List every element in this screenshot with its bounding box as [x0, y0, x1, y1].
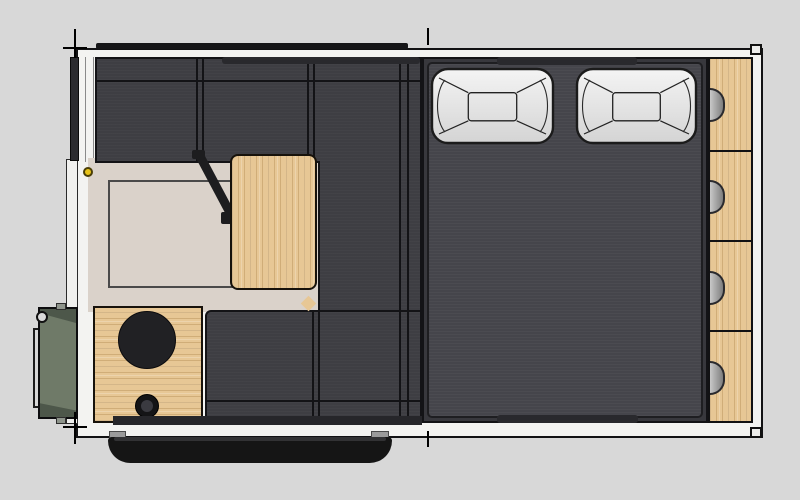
- dinette-top-bench: [95, 57, 422, 163]
- cushion-seam: [202, 59, 204, 161]
- cushion-seam: [97, 80, 420, 82]
- table-leg-mount: [192, 150, 205, 159]
- storage-cabinet-column: [708, 57, 753, 423]
- left-exterior-trim: [70, 57, 79, 161]
- drain-fitting-center: [141, 400, 153, 412]
- cushion-seam: [407, 59, 409, 161]
- cushion-seam: [399, 59, 401, 161]
- sink-basin: [118, 311, 176, 369]
- cushion-seam: [399, 312, 401, 421]
- corner-latch: [750, 427, 762, 438]
- cabinet-handle: [710, 88, 725, 122]
- cushion-seam: [307, 59, 309, 161]
- rear-bumper-step: [108, 437, 392, 463]
- bed-head-rail: [497, 57, 637, 65]
- roof-rail: [96, 43, 408, 49]
- exterior-storage-box: [38, 307, 78, 419]
- cabinet-divider: [710, 240, 751, 242]
- wall-line: [93, 57, 94, 162]
- cabinet-divider: [710, 330, 751, 332]
- bed-mattress: [427, 62, 703, 418]
- cushion-seam: [312, 312, 314, 421]
- dinette-table: [230, 154, 317, 290]
- bed-foot-rail: [497, 415, 638, 423]
- cabinet-divider: [710, 150, 751, 152]
- cushion-seam: [196, 59, 198, 161]
- axis-mark: [74, 412, 76, 444]
- seat-wall-gap: [222, 57, 420, 64]
- cushion-seam: [318, 312, 320, 421]
- entry-threshold-strip: [113, 416, 422, 425]
- cushion-seam: [407, 312, 409, 421]
- wall-line: [85, 57, 86, 162]
- corner-latch: [750, 44, 762, 55]
- section-tick: [427, 28, 429, 45]
- door-knob: [83, 167, 93, 177]
- axis-mark: [74, 29, 76, 58]
- dinette-bottom-bench: [205, 310, 422, 423]
- cushion-seam: [399, 161, 401, 311]
- bumper-highlight: [114, 437, 386, 441]
- cushion-seam: [407, 161, 409, 311]
- cushion-seam: [313, 59, 315, 161]
- exterior-box-tab: [56, 303, 66, 310]
- exterior-box-tab: [56, 417, 66, 424]
- exterior-box-latch-cylinder: [36, 311, 48, 323]
- cushion-seam: [207, 400, 420, 402]
- axis-mark: [63, 426, 87, 428]
- cabinet-handle: [710, 271, 725, 305]
- dinette-side-cushion: [318, 161, 422, 311]
- cabinet-handle: [710, 180, 725, 214]
- floor-plan-canvas: [0, 0, 800, 500]
- axis-mark: [63, 47, 87, 49]
- section-tick: [427, 431, 429, 447]
- cabinet-handle: [710, 361, 725, 395]
